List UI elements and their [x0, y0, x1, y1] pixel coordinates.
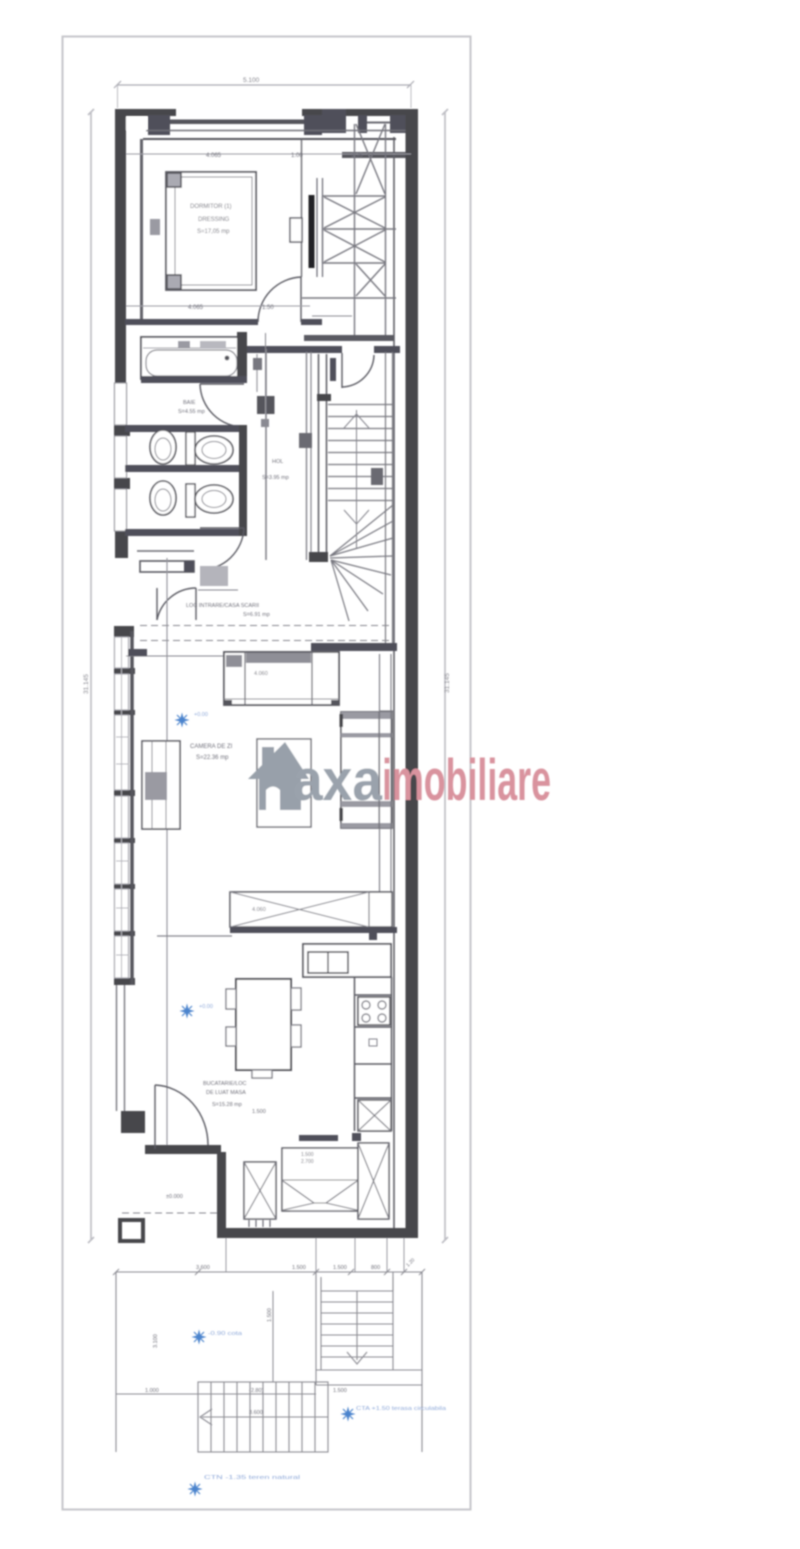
svg-text:1.35: 1.35: [351, 153, 363, 159]
svg-text:S=6.91 mp: S=6.91 mp: [243, 612, 270, 618]
svg-text:HOL: HOL: [272, 459, 283, 465]
svg-text:1.500: 1.500: [333, 1265, 347, 1271]
svg-text:LOC INTRARE/CASA SCARII: LOC INTRARE/CASA SCARII: [186, 603, 260, 609]
svg-text:2.700: 2.700: [301, 1159, 314, 1165]
svg-text:800: 800: [371, 1265, 380, 1271]
svg-text:(2.80): (2.80): [249, 1388, 264, 1394]
svg-text:DE LUAT MASA: DE LUAT MASA: [206, 1090, 246, 1096]
svg-text:1.500: 1.500: [301, 1152, 314, 1158]
svg-text:1.500: 1.500: [252, 1109, 266, 1115]
svg-text:±0.000: ±0.000: [166, 1194, 183, 1200]
svg-text:3.600: 3.600: [196, 1265, 210, 1271]
svg-text:4.065: 4.065: [188, 305, 204, 311]
svg-text:S=22.36 mp: S=22.36 mp: [196, 755, 229, 761]
svg-text:31.145: 31.145: [83, 674, 90, 694]
svg-text:4.060: 4.060: [254, 671, 268, 677]
svg-text:-0.90 cota: -0.90 cota: [208, 1331, 243, 1337]
svg-text:3.100: 3.100: [153, 1334, 159, 1348]
svg-text:5.100: 5.100: [243, 77, 260, 84]
svg-text:BAIE: BAIE: [183, 400, 196, 406]
svg-text:CTA +1.50 terasa circulabila: CTA +1.50 terasa circulabila: [356, 1406, 447, 1412]
svg-text:1.500: 1.500: [267, 1308, 273, 1322]
svg-text:S=4.55 mp: S=4.55 mp: [178, 409, 205, 415]
svg-text:imobiliare: imobiliare: [382, 748, 551, 813]
svg-text:CAMERA DE ZI: CAMERA DE ZI: [190, 744, 233, 750]
svg-text:4.060: 4.060: [252, 907, 266, 913]
svg-text:1.000: 1.000: [145, 1388, 159, 1394]
svg-text:DORMITOR (1): DORMITOR (1): [190, 204, 232, 210]
svg-text:+0.00: +0.00: [199, 1004, 213, 1010]
svg-text:3.600: 3.600: [249, 1410, 263, 1416]
svg-text:31.145: 31.145: [444, 673, 451, 693]
svg-text:1.50: 1.50: [262, 305, 274, 311]
svg-text:S=17,05 mp: S=17,05 mp: [197, 229, 230, 235]
svg-text:+0.00: +0.00: [194, 712, 208, 718]
svg-text:BUCATARIE/LOC: BUCATARIE/LOC: [203, 1081, 247, 1087]
svg-text:axa: axa: [293, 748, 383, 813]
svg-text:DRESSING: DRESSING: [198, 217, 230, 223]
svg-text:1.500: 1.500: [292, 1265, 306, 1271]
svg-text:S=15.28 mp: S=15.28 mp: [212, 1102, 242, 1108]
svg-text:CTN -1.35 teren natural: CTN -1.35 teren natural: [204, 1475, 300, 1481]
svg-text:4.065: 4.065: [206, 153, 222, 159]
svg-text:S=3.95 mp: S=3.95 mp: [262, 475, 289, 481]
svg-text:1.20: 1.20: [405, 1257, 416, 1268]
svg-text:1.500: 1.500: [333, 1388, 347, 1394]
